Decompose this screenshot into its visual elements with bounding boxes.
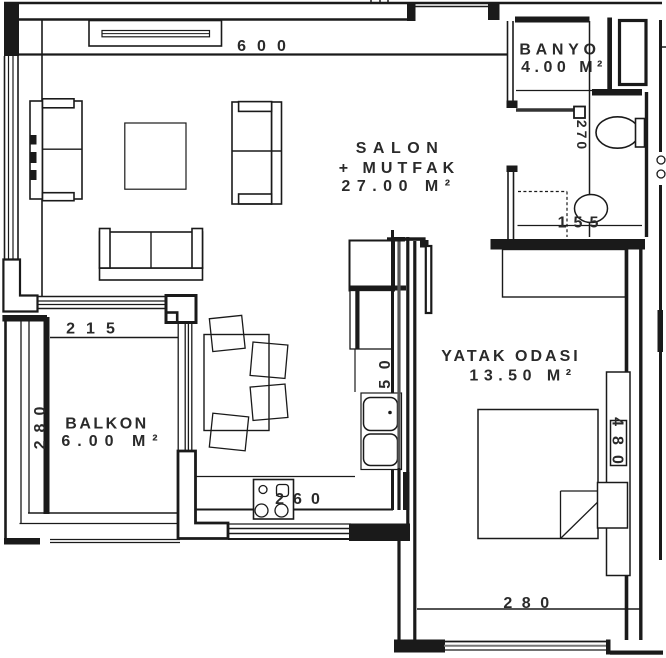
svg-text:27.00 M²: 27.00 M² <box>341 178 456 195</box>
svg-text:6.00 M²: 6.00 M² <box>61 433 164 450</box>
svg-text:260: 260 <box>275 491 329 508</box>
svg-text:600: 600 <box>237 38 297 55</box>
svg-text:BANYO: BANYO <box>519 42 600 59</box>
svg-text:280: 280 <box>32 399 49 450</box>
svg-text:SALON: SALON <box>356 140 445 157</box>
svg-text:+ MUTFAK: + MUTFAK <box>339 160 459 177</box>
svg-text:270: 270 <box>574 120 590 152</box>
svg-text:4.00 M²: 4.00 M² <box>521 59 607 76</box>
svg-text:13.50 M²: 13.50 M² <box>469 368 576 385</box>
svg-text:BALKON: BALKON <box>65 416 148 433</box>
svg-text:215: 215 <box>66 321 126 338</box>
svg-text:155: 155 <box>558 215 606 232</box>
svg-text:480: 480 <box>609 417 626 474</box>
svg-text:YATAK ODASI: YATAK ODASI <box>441 348 580 365</box>
